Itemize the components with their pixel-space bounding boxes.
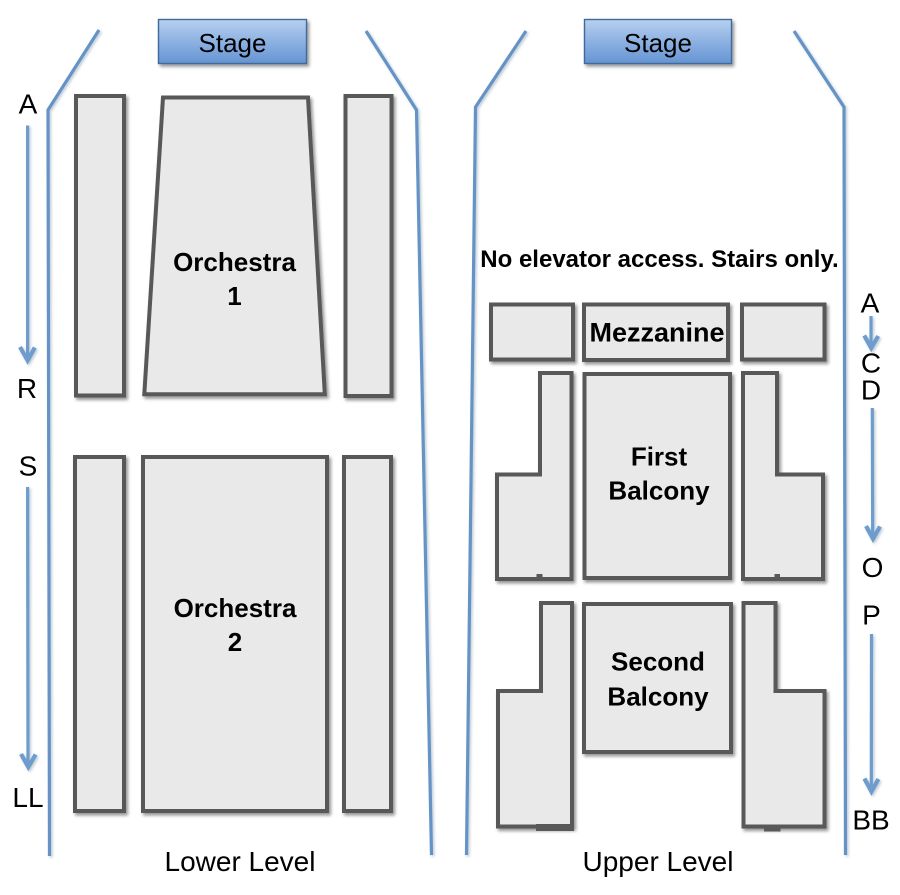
svg-text:Balcony: Balcony [608, 476, 710, 506]
svg-text:1: 1 [227, 281, 241, 311]
svg-text:P: P [862, 600, 881, 631]
svg-text:Orchestra: Orchestra [173, 247, 296, 277]
svg-text:BB: BB [852, 805, 889, 836]
svg-text:A: A [861, 288, 880, 319]
svg-text:A: A [19, 89, 38, 120]
svg-text:Balcony: Balcony [607, 682, 709, 712]
svg-text:No elevator access. Stairs onl: No elevator access. Stairs only. [480, 246, 838, 273]
svg-text:LL: LL [12, 782, 43, 813]
svg-text:Mezzanine: Mezzanine [589, 318, 724, 348]
svg-text:D: D [861, 375, 881, 406]
svg-text:S: S [19, 451, 38, 482]
svg-text:Stage: Stage [624, 28, 692, 58]
svg-text:First: First [631, 442, 688, 472]
svg-text:Stage: Stage [199, 28, 267, 58]
svg-text:Orchestra: Orchestra [174, 593, 297, 623]
svg-text:2: 2 [228, 627, 242, 657]
svg-text:Upper Level: Upper Level [583, 846, 734, 877]
svg-text:Second: Second [611, 647, 705, 677]
svg-text:R: R [17, 373, 37, 404]
svg-text:O: O [862, 552, 884, 583]
svg-text:Lower Level: Lower Level [165, 846, 316, 877]
